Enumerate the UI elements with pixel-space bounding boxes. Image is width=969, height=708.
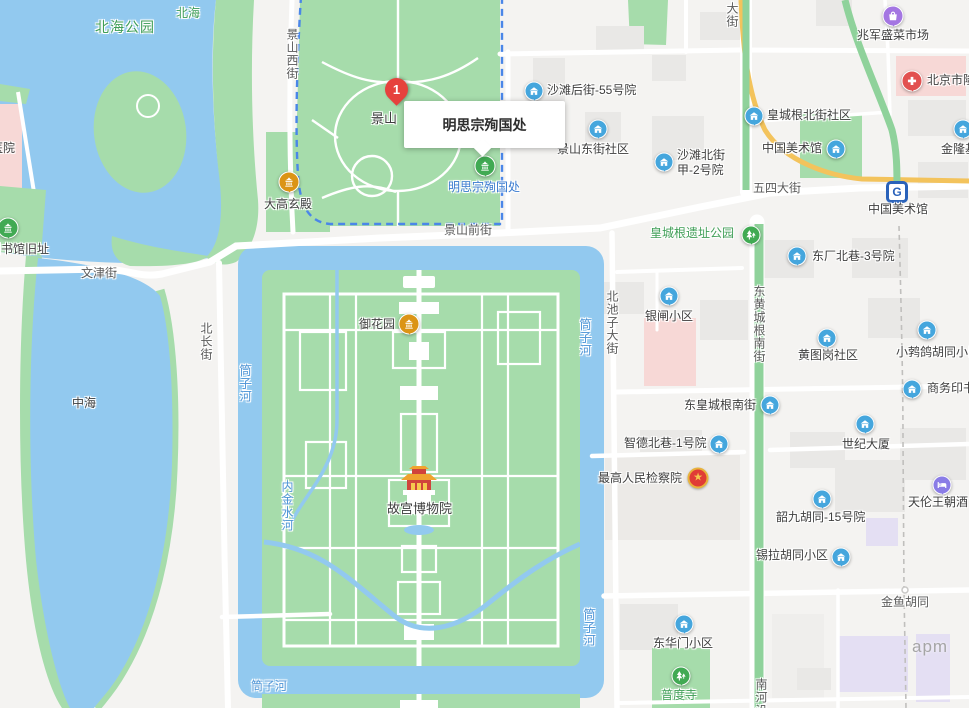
poi-label-apm[interactable]: apm — [912, 636, 948, 657]
street-label-beichizi: 北池子大街 — [604, 290, 619, 355]
palace-icon[interactable] — [399, 466, 439, 496]
park-label-beihai-park: 北海公园 — [95, 19, 155, 37]
community-icon[interactable] — [710, 435, 729, 454]
water-label-tongzi-east: 筒子河 — [577, 318, 592, 357]
poi-label-dongchang3[interactable]: 东厂北巷-3号院 — [812, 249, 895, 264]
community-icon[interactable] — [903, 380, 922, 399]
poi-label-century-tower[interactable]: 世纪大厦 — [842, 437, 890, 452]
poi-label-beijing-hospital[interactable]: 北京市隆 — [927, 73, 969, 88]
water-label-neijinshui: 内金水河 — [279, 480, 294, 532]
poi-label-shatan55[interactable]: 沙滩后街-55号院 — [547, 83, 636, 98]
poi-label-xiaoboge[interactable]: 小鹁鸽胡同小区 — [896, 345, 969, 360]
park-tree-icon[interactable] — [742, 226, 761, 245]
poi-label-line1: 沙滩北街 — [677, 148, 725, 162]
park-label-jingshan: 景山 — [371, 111, 397, 127]
poi-label-donghuamen[interactable]: 东华门小区 — [653, 636, 713, 651]
poi-label-hospital-edge: 医院 — [0, 141, 15, 156]
bus-stop-icon[interactable] — [761, 396, 780, 415]
temple-green-icon[interactable] — [475, 155, 496, 176]
community-icon[interactable] — [856, 415, 875, 434]
poi-label-dagaoxuan[interactable]: 大高玄殿 — [264, 197, 312, 212]
community-icon[interactable] — [818, 329, 837, 348]
hospital-cross-icon[interactable] — [902, 70, 923, 91]
water-label-zhonghai: 中海 — [72, 396, 96, 411]
street-label-nanheyan: 南河沿 — [753, 678, 768, 708]
poi-label-jingshan-east-community[interactable]: 景山东街社区 — [557, 142, 629, 157]
street-label-jinyu: 金鱼胡同 — [881, 595, 929, 610]
temple-amber-icon[interactable] — [279, 171, 300, 192]
street-label-jingshan-front: 景山前街 — [444, 223, 492, 238]
community-icon[interactable] — [589, 120, 608, 139]
street-label-dajie: 大街 — [724, 2, 739, 28]
poi-label-dhcg-south[interactable]: 东皇城根南街 — [684, 398, 756, 413]
poi-label-pudu[interactable]: 普度寺 — [661, 688, 697, 703]
poi-label-art-museum[interactable]: 中国美术馆 — [762, 141, 822, 156]
water-label-tongzi-west: 筒子河 — [237, 364, 252, 403]
hotel-bed-icon[interactable] — [933, 476, 952, 495]
poi-label-jinlongji[interactable]: 金隆基 — [941, 142, 969, 157]
street-label-jingshan-west: 景山西街 — [284, 28, 299, 80]
marker-number: 1 — [385, 78, 408, 101]
water-label-beihai: 北海 — [176, 6, 200, 21]
street-label-donghuang-south: 东黄城根南街 — [751, 285, 766, 363]
park-label-huangchenggen[interactable]: 皇城根遗址公园 — [650, 226, 734, 241]
market-bag-icon[interactable] — [883, 5, 904, 26]
tooltip-title: 明思宗殉国处 — [443, 115, 527, 135]
poi-tooltip[interactable]: 明思宗殉国处 — [404, 101, 565, 148]
poi-label-huangtugang[interactable]: 黄图岗社区 — [798, 348, 858, 363]
tree-icon[interactable] — [672, 667, 691, 686]
poi-label-mingsizong[interactable]: 明思宗殉国处 — [448, 180, 520, 195]
poi-label-shatan-north[interactable]: 沙滩北街甲-2号院 — [677, 148, 725, 178]
street-label-beichang: 北长街 — [198, 322, 213, 361]
poi-label-zhaojun-market[interactable]: 兆军盛菜市场 — [857, 28, 929, 43]
community-icon[interactable] — [655, 153, 674, 172]
temple-amber-icon[interactable] — [399, 313, 420, 334]
community-icon[interactable] — [832, 548, 851, 567]
water-label-tongzi-southeast: 筒子河 — [581, 608, 596, 647]
community-icon[interactable] — [788, 247, 807, 266]
map-viewport[interactable]: G ★ 1 明思宗殉国处 北海公园 北海 景山西街 医院 图书馆旧址 大高玄殿 … — [0, 0, 969, 708]
poi-label-procuratorate[interactable]: 最高人民检察院 — [598, 471, 682, 486]
museum-icon[interactable] — [827, 140, 846, 159]
community-icon[interactable] — [745, 107, 764, 126]
community-icon[interactable] — [660, 287, 679, 306]
national-emblem-icon: ★ — [688, 468, 709, 489]
subway-icon[interactable]: G — [886, 181, 908, 203]
poi-label-shangwu[interactable]: 商务印书 — [927, 381, 969, 396]
community-icon[interactable] — [954, 120, 969, 139]
poi-label-shaojiu15[interactable]: 韶九胡同-15号院 — [776, 510, 865, 525]
poi-label-line2: 甲-2号院 — [677, 163, 724, 177]
poi-label-yuhuayuan[interactable]: 御花园 — [359, 317, 395, 332]
street-label-wusi: 五四大街 — [753, 181, 801, 196]
poi-label-hcg-north-community[interactable]: 皇城根北街社区 — [767, 108, 851, 123]
community-icon[interactable] — [813, 490, 832, 509]
street-label-wenjin: 文津街 — [81, 266, 117, 281]
poi-label-gugong[interactable]: 故宫博物院 — [387, 501, 452, 517]
community-icon[interactable] — [675, 615, 694, 634]
poi-label-xila[interactable]: 锡拉胡同小区 — [756, 548, 828, 563]
water-label-tongzi-south: 筒子河 — [251, 679, 287, 694]
poi-label-tianlun-hotel[interactable]: 天伦王朝酒 — [908, 495, 968, 510]
poi-label-library-site[interactable]: 图书馆旧址 — [0, 242, 49, 257]
poi-label-art-museum-station[interactable]: 中国美术馆 — [868, 202, 928, 217]
poi-label-yinzha[interactable]: 银闸小区 — [645, 309, 693, 324]
poi-label-zhide1[interactable]: 智德北巷-1号院 — [624, 436, 707, 451]
community-icon[interactable] — [525, 82, 544, 101]
community-icon[interactable] — [918, 321, 937, 340]
